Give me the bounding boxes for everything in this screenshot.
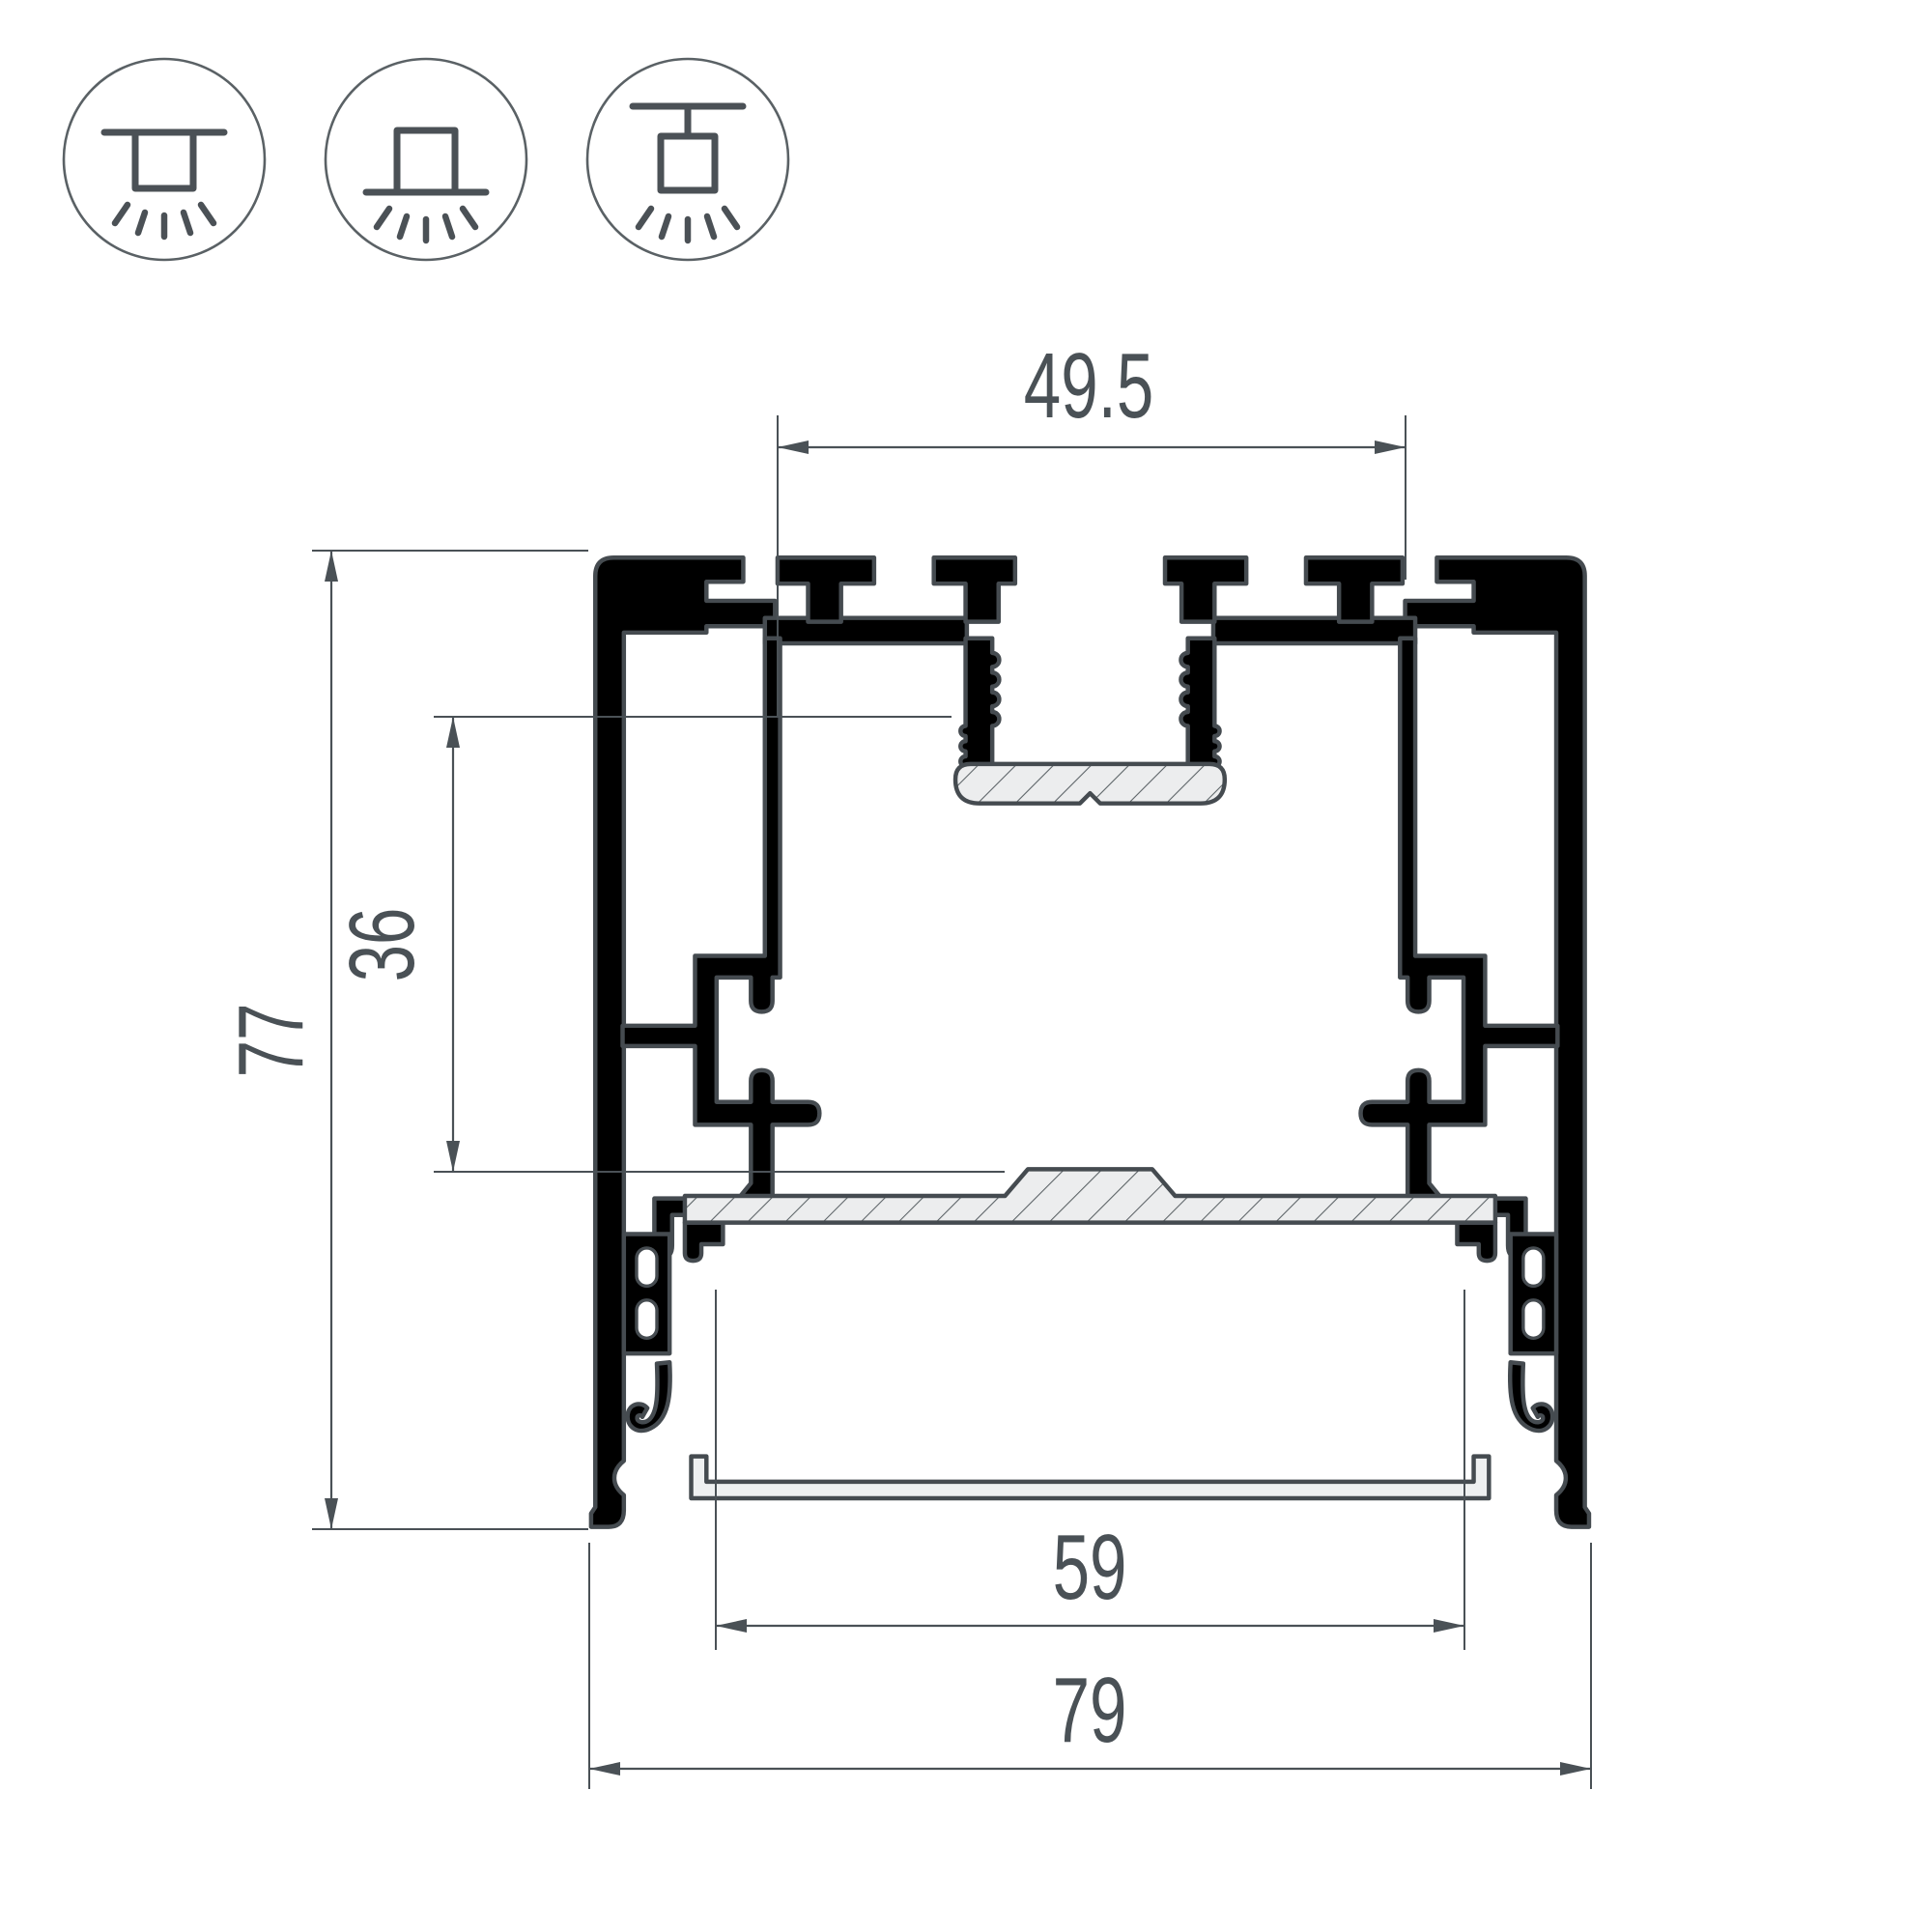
dim-label-tab-span: 49.5 [1024, 333, 1153, 438]
dim-label-inner-cavity-height: 36 [329, 908, 434, 982]
technical-drawing: 49.5 77 36 59 79 [0, 0, 1932, 1932]
dim-label-overall-width: 79 [1053, 1658, 1127, 1762]
dim-label-overall-height: 77 [218, 1004, 323, 1078]
dim-label-opening-width: 59 [1053, 1515, 1127, 1619]
canvas [0, 0, 1932, 1932]
